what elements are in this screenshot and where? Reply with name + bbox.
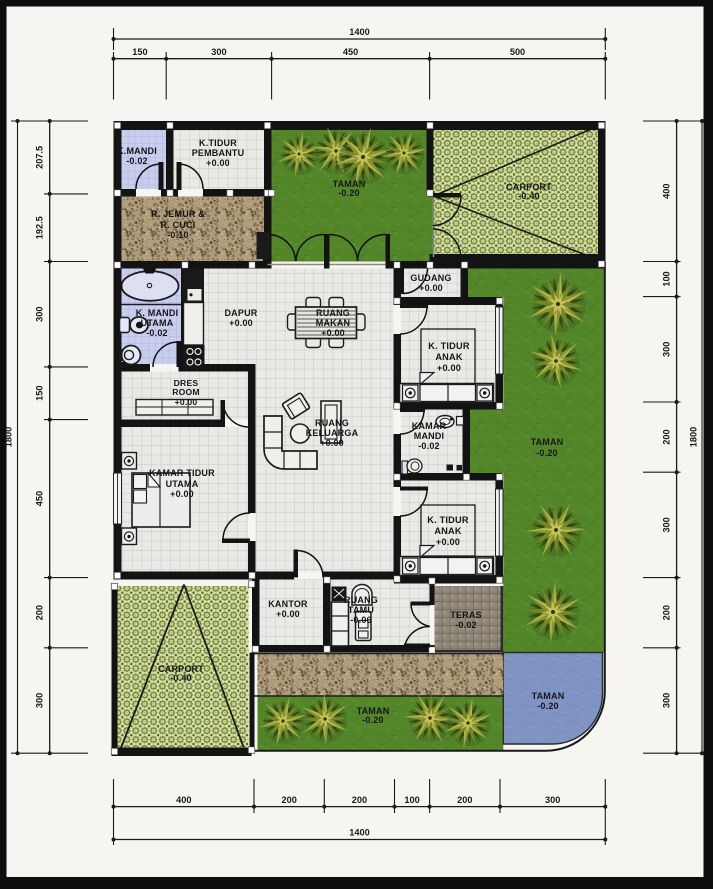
svg-text:K. MANDI: K. MANDI xyxy=(136,308,179,318)
svg-text:200: 200 xyxy=(457,795,472,805)
svg-text:+0.00: +0.00 xyxy=(320,438,344,448)
svg-text:200: 200 xyxy=(282,795,297,805)
svg-text:300: 300 xyxy=(662,517,672,532)
svg-text:+0.00: +0.00 xyxy=(321,328,345,338)
svg-text:K. TIDUR: K. TIDUR xyxy=(428,341,470,351)
svg-text:100: 100 xyxy=(662,271,672,286)
svg-text:207.5: 207.5 xyxy=(35,146,45,169)
svg-text:DAPUR: DAPUR xyxy=(224,308,257,318)
svg-text:-0.20: -0.20 xyxy=(362,715,384,725)
svg-text:MAKAN: MAKAN xyxy=(316,318,351,328)
svg-text:450: 450 xyxy=(35,491,45,506)
svg-text:+0.00: +0.00 xyxy=(170,489,194,499)
svg-text:KANTOR: KANTOR xyxy=(268,599,308,609)
svg-text:1400: 1400 xyxy=(349,27,369,37)
svg-text:200: 200 xyxy=(352,795,367,805)
svg-text:-0.20: -0.20 xyxy=(536,448,558,458)
svg-text:300: 300 xyxy=(35,693,45,708)
svg-text:UTAMA: UTAMA xyxy=(141,318,174,328)
svg-text:+0.00: +0.00 xyxy=(419,283,443,293)
svg-text:150: 150 xyxy=(35,386,45,401)
svg-text:-0.10: -0.10 xyxy=(167,230,189,240)
svg-text:400: 400 xyxy=(176,795,191,805)
svg-text:300: 300 xyxy=(35,307,45,322)
svg-text:-0.20: -0.20 xyxy=(338,188,360,198)
svg-text:RUANG: RUANG xyxy=(316,308,350,318)
svg-text:-0.02: -0.02 xyxy=(146,328,168,338)
svg-text:TAMAN: TAMAN xyxy=(531,437,564,447)
svg-text:-0.02: -0.02 xyxy=(455,620,477,630)
svg-text:ANAK: ANAK xyxy=(435,352,463,362)
svg-text:-0.40: -0.40 xyxy=(170,673,192,683)
svg-text:TERAS: TERAS xyxy=(450,610,482,620)
svg-text:200: 200 xyxy=(662,605,672,620)
svg-text:TAMAN: TAMAN xyxy=(532,691,565,701)
svg-text:+0.00: +0.00 xyxy=(229,318,253,328)
svg-text:+0.00: +0.00 xyxy=(437,363,461,373)
svg-text:300: 300 xyxy=(211,47,226,57)
svg-text:MANDI: MANDI xyxy=(414,431,445,441)
svg-text:300: 300 xyxy=(662,693,672,708)
svg-text:R. CUCI: R. CUCI xyxy=(161,220,196,230)
svg-text:+0.00: +0.00 xyxy=(436,537,460,547)
svg-text:1800: 1800 xyxy=(689,427,699,447)
svg-text:RUANG: RUANG xyxy=(344,595,378,605)
svg-text:400: 400 xyxy=(662,184,672,199)
svg-text:-0.02: -0.02 xyxy=(418,441,440,451)
svg-text:KAMAR TIDUR: KAMAR TIDUR xyxy=(149,468,215,478)
svg-text:+0.00: +0.00 xyxy=(175,397,198,407)
svg-text:-0.06: -0.06 xyxy=(350,615,372,625)
svg-text:GUDANG: GUDANG xyxy=(410,273,451,283)
svg-text:200: 200 xyxy=(35,605,45,620)
svg-text:+0.00: +0.00 xyxy=(276,609,300,619)
svg-text:PEMBANTU: PEMBANTU xyxy=(192,148,245,158)
svg-text:TAMU: TAMU xyxy=(348,605,374,615)
svg-text:RUANG: RUANG xyxy=(315,418,349,428)
svg-text:KAMAR: KAMAR xyxy=(412,421,447,431)
svg-text:K.TIDUR: K.TIDUR xyxy=(199,138,237,148)
svg-text:200: 200 xyxy=(662,429,672,444)
svg-text:ROOM: ROOM xyxy=(172,387,200,397)
svg-text:-0.02: -0.02 xyxy=(126,156,148,166)
svg-text:450: 450 xyxy=(343,47,358,57)
svg-text:-0.40: -0.40 xyxy=(518,191,540,201)
svg-text:300: 300 xyxy=(545,795,560,805)
svg-text:ANAK: ANAK xyxy=(434,526,462,536)
svg-text:UTAMA: UTAMA xyxy=(166,479,199,489)
svg-text:K.MANDI: K.MANDI xyxy=(117,146,157,156)
svg-text:192.5: 192.5 xyxy=(35,216,45,239)
svg-text:-0.20: -0.20 xyxy=(537,701,559,711)
svg-text:500: 500 xyxy=(510,47,525,57)
svg-text:+0.00: +0.00 xyxy=(206,158,230,168)
svg-text:KELUARGA: KELUARGA xyxy=(306,428,359,438)
svg-text:1400: 1400 xyxy=(349,828,369,838)
svg-text:300: 300 xyxy=(662,342,672,357)
svg-text:150: 150 xyxy=(132,47,147,57)
svg-text:R. JEMUR &: R. JEMUR & xyxy=(151,209,205,219)
svg-text:100: 100 xyxy=(404,795,419,805)
svg-text:K. TIDUR: K. TIDUR xyxy=(427,515,469,525)
